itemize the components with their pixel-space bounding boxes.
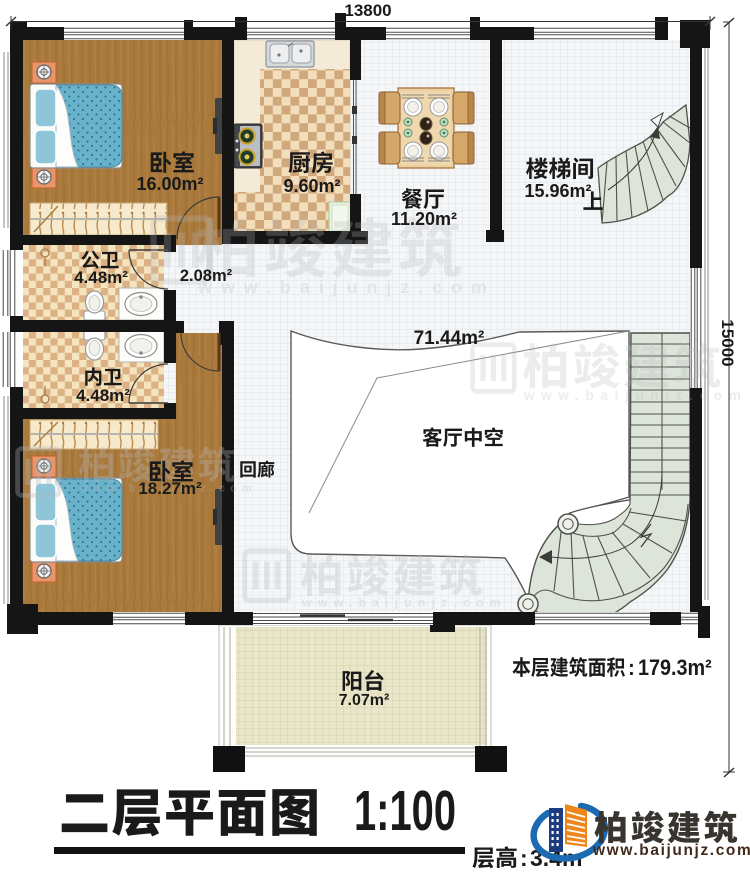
svg-text:7.07m²: 7.07m² xyxy=(339,692,390,709)
svg-text:4.48m²: 4.48m² xyxy=(76,386,130,405)
svg-text:15.96m²: 15.96m² xyxy=(524,181,591,201)
svg-text:18.27m²: 18.27m² xyxy=(138,479,202,498)
svg-text:2.08m²: 2.08m² xyxy=(180,267,233,285)
svg-text:13800: 13800 xyxy=(344,1,391,20)
svg-text:16.00m²: 16.00m² xyxy=(136,174,203,194)
svg-text::: : xyxy=(628,656,635,680)
svg-text:15000: 15000 xyxy=(718,319,737,366)
svg-text:1:100: 1:100 xyxy=(354,779,456,843)
svg-text:www.baijunjz.com: www.baijunjz.com xyxy=(197,277,496,297)
svg-text:11.20m²: 11.20m² xyxy=(391,209,457,229)
svg-text:4.48m²: 4.48m² xyxy=(74,268,128,287)
svg-text:179.3m²: 179.3m² xyxy=(638,656,712,680)
svg-text:www.baijunjz.com: www.baijunjz.com xyxy=(592,842,750,859)
svg-text:9.60m²: 9.60m² xyxy=(283,176,340,196)
svg-text:www.baijunjz.com: www.baijunjz.com xyxy=(523,388,748,403)
svg-text::: : xyxy=(520,845,528,871)
svg-text:www.baijunjz.com: www.baijunjz.com xyxy=(301,596,507,610)
svg-text:71.44m²: 71.44m² xyxy=(414,328,485,349)
